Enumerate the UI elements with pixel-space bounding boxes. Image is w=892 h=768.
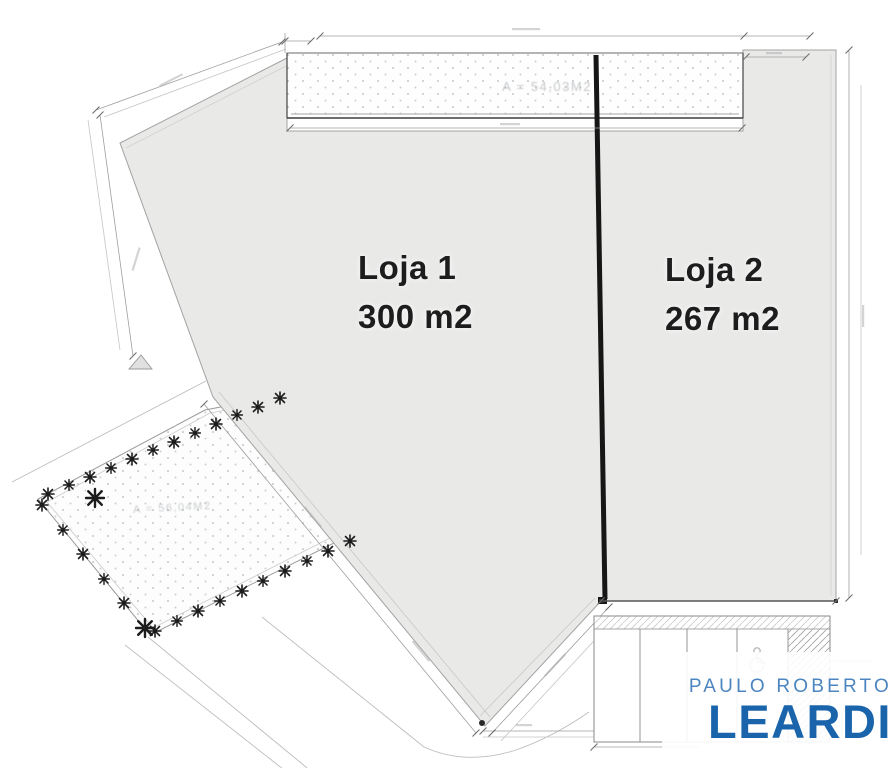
tree-icon: [99, 574, 110, 585]
leardi-logo: PAULO ROBERTO LEARDI: [662, 652, 892, 768]
tree-icon: [118, 597, 130, 609]
tree-icon: [232, 410, 243, 421]
tree-icon: [192, 605, 204, 617]
loja2-name: Loja 2: [665, 245, 780, 294]
loja1-name: Loja 1: [358, 243, 473, 292]
tree-icon: [302, 556, 313, 567]
tree-icon: [42, 488, 54, 500]
loja2-area: 267 m2: [665, 294, 780, 343]
loja1-label: Loja 1 300 m2: [358, 243, 473, 341]
tree-icon: [210, 418, 222, 430]
tree-icon: [274, 392, 286, 404]
tip-corner-cap: [479, 720, 485, 726]
tree-icon: [215, 596, 226, 607]
tree-icon: [252, 401, 264, 413]
tree-icon: [126, 453, 138, 465]
canopy-area-label: A = 54,03M2: [462, 79, 632, 94]
tree-icon: [86, 489, 104, 507]
tree-icon: [77, 548, 89, 560]
loja2-label: Loja 2 267 m2: [665, 245, 780, 343]
tree-icon: [172, 616, 183, 627]
tree-icon: [149, 625, 161, 637]
tree-icon: [279, 565, 291, 577]
tree-icon: [148, 445, 159, 456]
loja1-area: 300 m2: [358, 292, 473, 341]
tree-icon: [190, 428, 201, 439]
tree-icon: [322, 545, 334, 557]
tree-icon: [344, 535, 356, 547]
logo-bottom-line: LEARDI: [662, 700, 892, 744]
floor-plan-image: Loja 1 300 m2 Loja 2 267 m2 A = 54,03M2 …: [0, 0, 892, 768]
tree-icon: [236, 585, 248, 597]
tree-icon: [64, 480, 75, 491]
tree-icon: [84, 471, 96, 483]
tree-icon: [106, 463, 117, 474]
tree-icon: [58, 525, 69, 536]
tree-icon: [258, 576, 269, 587]
tree-icon: [36, 499, 48, 511]
tree-icon: [168, 436, 180, 448]
